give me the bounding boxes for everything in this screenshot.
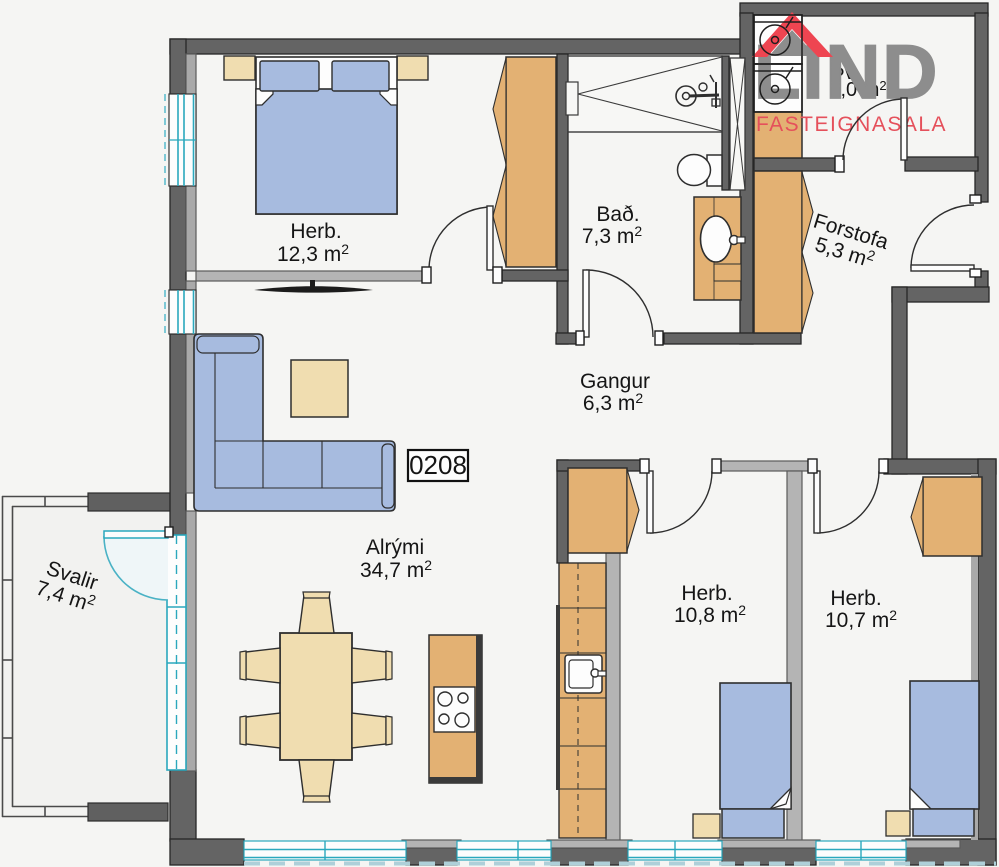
svg-text:34,7 m2: 34,7 m2 <box>360 557 432 582</box>
svg-text:6,3 m2: 6,3 m2 <box>583 390 644 415</box>
svg-text:FASTEIGNASALA: FASTEIGNASALA <box>756 113 947 136</box>
svg-text:Herb.: Herb. <box>290 220 341 243</box>
svg-text:10,8 m2: 10,8 m2 <box>674 602 746 627</box>
svg-text:Alrými: Alrými <box>366 536 424 559</box>
svg-text:12,3 m2: 12,3 m2 <box>277 241 349 266</box>
svg-text:7,3 m2: 7,3 m2 <box>582 223 643 248</box>
svg-text:Bað.: Bað. <box>596 203 639 226</box>
svg-text:0208: 0208 <box>409 450 467 480</box>
svg-text:Herb.: Herb. <box>681 582 732 605</box>
svg-text:Herb.: Herb. <box>830 587 881 610</box>
svg-text:10,7 m2: 10,7 m2 <box>825 607 897 632</box>
